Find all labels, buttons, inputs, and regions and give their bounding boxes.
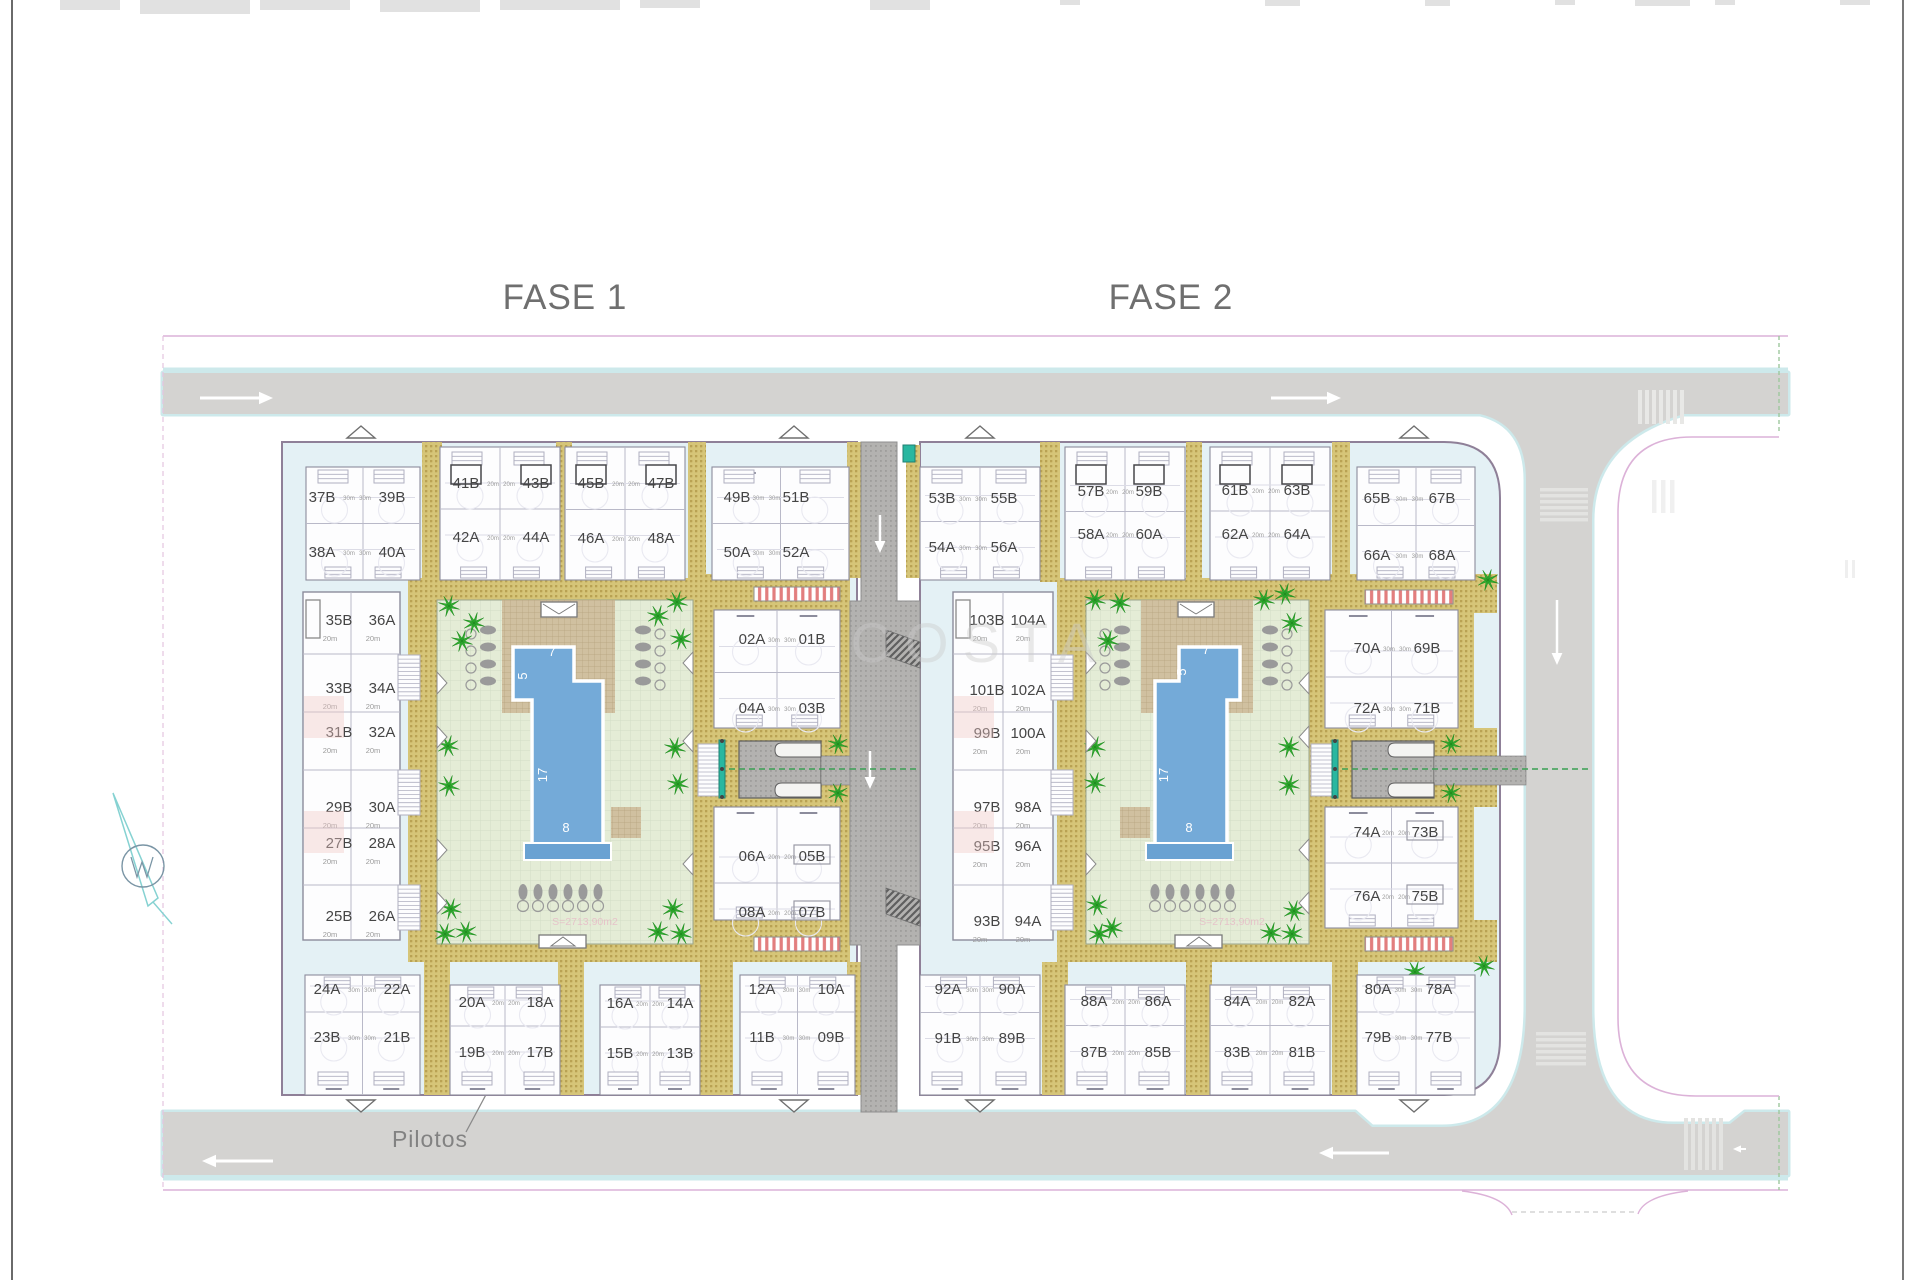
svg-text:FASE 1: FASE 1 <box>503 278 628 317</box>
svg-text:73B: 73B <box>1412 824 1439 841</box>
svg-text:30m: 30m <box>982 988 994 994</box>
svg-text:20m: 20m <box>1112 1051 1124 1057</box>
svg-text:68A: 68A <box>1429 547 1456 564</box>
svg-text:12A: 12A <box>749 981 776 998</box>
svg-text:30m: 30m <box>1383 707 1395 713</box>
svg-text:58A: 58A <box>1078 526 1105 543</box>
svg-text:30m: 30m <box>769 496 781 502</box>
svg-text:100A: 100A <box>1010 725 1045 742</box>
svg-text:60A: 60A <box>1136 526 1163 543</box>
svg-text:20m: 20m <box>1016 747 1031 756</box>
svg-text:30m: 30m <box>799 988 811 994</box>
svg-text:20m: 20m <box>1106 490 1118 496</box>
svg-text:20m: 20m <box>1128 1000 1140 1006</box>
svg-text:93B: 93B <box>974 913 1001 930</box>
svg-text:70A: 70A <box>1354 640 1381 657</box>
svg-text:Pilotos: Pilotos <box>392 1126 468 1152</box>
svg-text:20m: 20m <box>612 537 624 543</box>
svg-text:FASE 2: FASE 2 <box>1109 278 1234 317</box>
svg-text:72A: 72A <box>1354 700 1381 717</box>
svg-text:30m: 30m <box>799 1036 811 1042</box>
svg-text:20m: 20m <box>503 536 515 542</box>
svg-text:69B: 69B <box>1414 640 1441 657</box>
svg-text:30m: 30m <box>769 551 781 557</box>
svg-text:94A: 94A <box>1015 913 1042 930</box>
svg-text:20m: 20m <box>768 855 780 861</box>
svg-text:13B: 13B <box>667 1045 694 1062</box>
svg-text:50A: 50A <box>724 544 751 561</box>
svg-text:44A: 44A <box>523 529 550 546</box>
svg-text:14A: 14A <box>667 995 694 1012</box>
svg-text:30m: 30m <box>966 1037 978 1043</box>
svg-text:76A: 76A <box>1354 888 1381 905</box>
svg-text:25B: 25B <box>326 908 353 925</box>
svg-text:30m: 30m <box>783 988 795 994</box>
svg-text:20m: 20m <box>1252 489 1264 495</box>
svg-text:08A: 08A <box>739 904 766 921</box>
svg-text:8: 8 <box>1185 820 1192 835</box>
svg-text:22A: 22A <box>384 981 411 998</box>
svg-text:20m: 20m <box>323 746 338 755</box>
svg-text:10A: 10A <box>818 981 845 998</box>
svg-text:S=2713,90m2: S=2713,90m2 <box>552 916 618 928</box>
svg-text:30m: 30m <box>1395 988 1407 994</box>
svg-text:20m: 20m <box>1272 1051 1284 1057</box>
svg-text:20m: 20m <box>1122 533 1134 539</box>
svg-text:30m: 30m <box>364 1036 376 1042</box>
svg-text:24A: 24A <box>314 981 341 998</box>
svg-text:06A: 06A <box>739 848 766 865</box>
svg-text:20m: 20m <box>1106 533 1118 539</box>
svg-text:03B: 03B <box>799 700 826 717</box>
svg-text:88A: 88A <box>1081 993 1108 1010</box>
svg-text:5: 5 <box>515 672 530 679</box>
svg-text:20m: 20m <box>628 537 640 543</box>
svg-text:07B: 07B <box>799 904 826 921</box>
svg-text:74A: 74A <box>1354 824 1381 841</box>
svg-text:5: 5 <box>1174 668 1189 675</box>
svg-text:32A: 32A <box>369 724 396 741</box>
svg-text:30m: 30m <box>966 988 978 994</box>
svg-text:20m: 20m <box>1112 1000 1124 1006</box>
svg-text:75B: 75B <box>1412 888 1439 905</box>
svg-text:30m: 30m <box>359 496 371 502</box>
svg-text:83B: 83B <box>1224 1044 1251 1061</box>
svg-text:30m: 30m <box>1411 1036 1423 1042</box>
svg-text:56A: 56A <box>991 539 1018 556</box>
svg-text:20m: 20m <box>1268 489 1280 495</box>
svg-text:20m: 20m <box>366 930 381 939</box>
svg-text:30m: 30m <box>959 546 971 552</box>
svg-text:80A: 80A <box>1365 981 1392 998</box>
svg-text:20m: 20m <box>628 482 640 488</box>
svg-text:30m: 30m <box>348 1036 360 1042</box>
svg-text:19B: 19B <box>459 1044 486 1061</box>
svg-text:30m: 30m <box>753 496 765 502</box>
svg-text:20A: 20A <box>459 994 486 1011</box>
svg-text:96A: 96A <box>1015 838 1042 855</box>
svg-text:17: 17 <box>1156 768 1171 782</box>
svg-text:30m: 30m <box>1412 497 1424 503</box>
svg-text:20m: 20m <box>1382 831 1394 837</box>
svg-text:20m: 20m <box>503 482 515 488</box>
svg-text:17B: 17B <box>527 1044 554 1061</box>
svg-text:20m: 20m <box>1382 895 1394 901</box>
svg-text:20m: 20m <box>1016 935 1031 944</box>
svg-text:65B: 65B <box>1364 490 1391 507</box>
svg-text:20m: 20m <box>768 911 780 917</box>
svg-text:36A: 36A <box>369 612 396 629</box>
svg-text:20m: 20m <box>1128 1051 1140 1057</box>
svg-text:23B: 23B <box>314 1029 341 1046</box>
svg-text:49B: 49B <box>724 489 751 506</box>
svg-text:67B: 67B <box>1429 490 1456 507</box>
svg-text:66A: 66A <box>1364 547 1391 564</box>
svg-text:30A: 30A <box>369 799 396 816</box>
svg-text:81B: 81B <box>1289 1044 1316 1061</box>
svg-text:20m: 20m <box>492 1001 504 1007</box>
svg-text:30m: 30m <box>343 551 355 557</box>
svg-text:S=2713,90m2: S=2713,90m2 <box>1199 916 1265 928</box>
svg-text:30m: 30m <box>975 497 987 503</box>
svg-text:20m: 20m <box>1016 860 1031 869</box>
svg-text:30m: 30m <box>982 1037 994 1043</box>
svg-text:26A: 26A <box>369 908 396 925</box>
svg-text:20m: 20m <box>366 746 381 755</box>
svg-text:20m: 20m <box>366 702 381 711</box>
svg-text:COSTA: COSTA <box>851 611 1110 674</box>
svg-text:20m: 20m <box>636 1002 648 1008</box>
svg-text:20m: 20m <box>1256 1051 1268 1057</box>
svg-text:84A: 84A <box>1224 993 1251 1010</box>
svg-text:8: 8 <box>562 820 569 835</box>
svg-text:20m: 20m <box>366 821 381 830</box>
svg-text:92A: 92A <box>935 981 962 998</box>
svg-text:20m: 20m <box>1016 704 1031 713</box>
svg-text:30m: 30m <box>1396 554 1408 560</box>
svg-text:20m: 20m <box>1398 831 1410 837</box>
svg-text:09B: 09B <box>818 1029 845 1046</box>
svg-text:90A: 90A <box>999 981 1026 998</box>
svg-text:20m: 20m <box>366 857 381 866</box>
svg-text:20m: 20m <box>973 935 988 944</box>
svg-text:55B: 55B <box>991 490 1018 507</box>
svg-text:20m: 20m <box>323 930 338 939</box>
svg-text:52A: 52A <box>783 544 810 561</box>
svg-text:7: 7 <box>1203 643 1210 657</box>
svg-text:30m: 30m <box>1411 988 1423 994</box>
svg-text:30m: 30m <box>359 551 371 557</box>
svg-text:20m: 20m <box>636 1052 648 1058</box>
svg-text:77B: 77B <box>1426 1029 1453 1046</box>
svg-text:98A: 98A <box>1015 799 1042 816</box>
svg-text:85B: 85B <box>1145 1044 1172 1061</box>
svg-text:20m: 20m <box>973 860 988 869</box>
svg-text:59B: 59B <box>1136 483 1163 500</box>
svg-text:30m: 30m <box>348 988 360 994</box>
svg-text:30m: 30m <box>343 496 355 502</box>
svg-text:34A: 34A <box>369 680 396 697</box>
svg-text:28A: 28A <box>369 835 396 852</box>
svg-text:30m: 30m <box>1383 647 1395 653</box>
svg-text:02A: 02A <box>739 631 766 648</box>
svg-text:64A: 64A <box>1284 526 1311 543</box>
svg-text:20m: 20m <box>1272 1000 1284 1006</box>
svg-text:20m: 20m <box>487 536 499 542</box>
svg-text:46A: 46A <box>578 530 605 547</box>
svg-text:54A: 54A <box>929 539 956 556</box>
svg-text:20m: 20m <box>492 1051 504 1057</box>
svg-text:30m: 30m <box>364 988 376 994</box>
svg-text:11B: 11B <box>749 1029 775 1046</box>
svg-text:17: 17 <box>535 768 550 782</box>
svg-text:30m: 30m <box>768 707 780 713</box>
svg-text:37B: 37B <box>309 489 336 506</box>
svg-text:20m: 20m <box>652 1002 664 1008</box>
svg-text:35B: 35B <box>326 612 353 629</box>
svg-text:30m: 30m <box>1399 707 1411 713</box>
svg-text:33B: 33B <box>326 680 353 697</box>
svg-text:40A: 40A <box>379 544 406 561</box>
svg-text:04A: 04A <box>739 700 766 717</box>
svg-text:20m: 20m <box>652 1052 664 1058</box>
svg-text:20m: 20m <box>1016 821 1031 830</box>
svg-text:7: 7 <box>549 645 556 659</box>
svg-text:20m: 20m <box>487 482 499 488</box>
svg-text:102A: 102A <box>1010 682 1045 699</box>
svg-text:20m: 20m <box>508 1001 520 1007</box>
svg-text:15B: 15B <box>607 1045 634 1062</box>
svg-text:57B: 57B <box>1078 483 1105 500</box>
svg-text:21B: 21B <box>384 1029 411 1046</box>
svg-text:30m: 30m <box>768 638 780 644</box>
svg-text:01B: 01B <box>799 631 826 648</box>
svg-text:62A: 62A <box>1222 526 1249 543</box>
svg-text:30m: 30m <box>784 707 796 713</box>
svg-text:71B: 71B <box>1414 700 1441 717</box>
svg-text:20m: 20m <box>1256 1000 1268 1006</box>
svg-text:30m: 30m <box>1395 1036 1407 1042</box>
svg-text:30m: 30m <box>1396 497 1408 503</box>
svg-text:51B: 51B <box>783 489 810 506</box>
svg-text:20m: 20m <box>1252 533 1264 539</box>
svg-text:05B: 05B <box>799 848 826 865</box>
svg-text:89B: 89B <box>999 1030 1026 1047</box>
svg-text:30m: 30m <box>975 546 987 552</box>
svg-text:87B: 87B <box>1081 1044 1108 1061</box>
svg-text:30m: 30m <box>1412 554 1424 560</box>
svg-text:30m: 30m <box>784 638 796 644</box>
svg-text:20m: 20m <box>1268 533 1280 539</box>
svg-text:91B: 91B <box>935 1030 962 1047</box>
svg-text:20m: 20m <box>1398 895 1410 901</box>
svg-text:20m: 20m <box>323 857 338 866</box>
svg-text:38A: 38A <box>309 544 336 561</box>
svg-text:82A: 82A <box>1289 993 1316 1010</box>
svg-text:20m: 20m <box>508 1051 520 1057</box>
svg-text:42A: 42A <box>453 529 480 546</box>
svg-text:53B: 53B <box>929 490 956 507</box>
svg-text:48A: 48A <box>648 530 675 547</box>
svg-text:30m: 30m <box>783 1036 795 1042</box>
svg-text:30m: 30m <box>959 497 971 503</box>
svg-text:16A: 16A <box>607 995 634 1012</box>
svg-text:39B: 39B <box>379 489 406 506</box>
svg-text:30m: 30m <box>1399 647 1411 653</box>
svg-text:20m: 20m <box>973 747 988 756</box>
svg-text:20m: 20m <box>1122 490 1134 496</box>
svg-text:78A: 78A <box>1426 981 1453 998</box>
svg-text:86A: 86A <box>1145 993 1172 1010</box>
svg-text:79B: 79B <box>1365 1029 1392 1046</box>
svg-text:30m: 30m <box>753 551 765 557</box>
svg-text:20m: 20m <box>612 482 624 488</box>
svg-text:18A: 18A <box>527 994 554 1011</box>
svg-text:20m: 20m <box>323 634 338 643</box>
svg-text:20m: 20m <box>366 634 381 643</box>
